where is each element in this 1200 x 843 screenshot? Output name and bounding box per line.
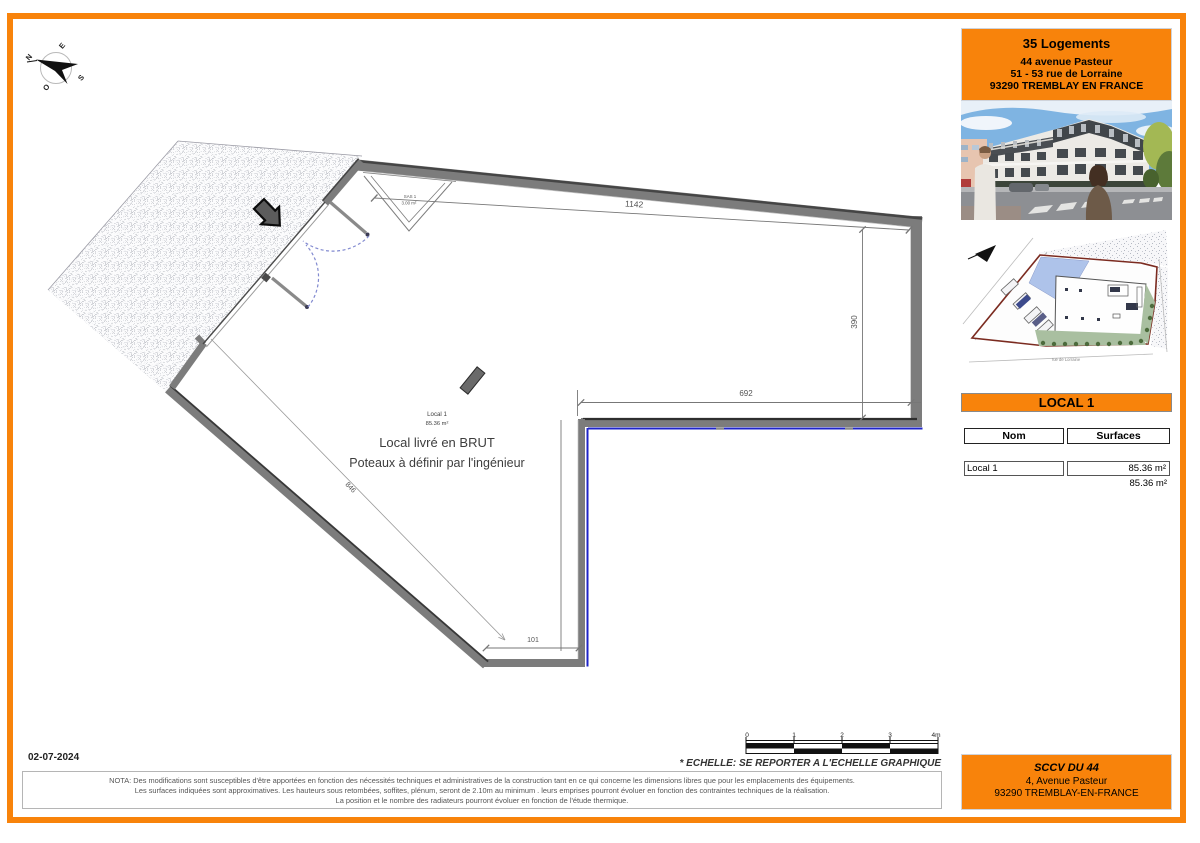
svg-text:1142: 1142 (625, 198, 644, 209)
svg-text:Local livré en BRUT: Local livré en BRUT (379, 435, 495, 450)
svg-text:3.00 m²: 3.00 m² (401, 201, 416, 206)
svg-text:SAS 1: SAS 1 (404, 194, 417, 199)
svg-text:846: 846 (344, 481, 357, 494)
svg-text:Poteaux à définir par l'ingéni: Poteaux à définir par l'ingénieur (349, 456, 524, 470)
svg-text:Local 1: Local 1 (427, 411, 447, 418)
svg-text:692: 692 (739, 389, 753, 398)
svg-text:E: E (57, 41, 67, 51)
svg-text:85.36 m²: 85.36 m² (426, 421, 449, 427)
svg-text:O: O (41, 82, 52, 92)
svg-text:101: 101 (527, 637, 539, 644)
svg-text:4m: 4m (931, 732, 940, 739)
svg-text:rue de Lorraine: rue de Lorraine (1052, 357, 1081, 362)
svg-text:390: 390 (850, 315, 859, 329)
svg-text:S: S (76, 73, 86, 83)
